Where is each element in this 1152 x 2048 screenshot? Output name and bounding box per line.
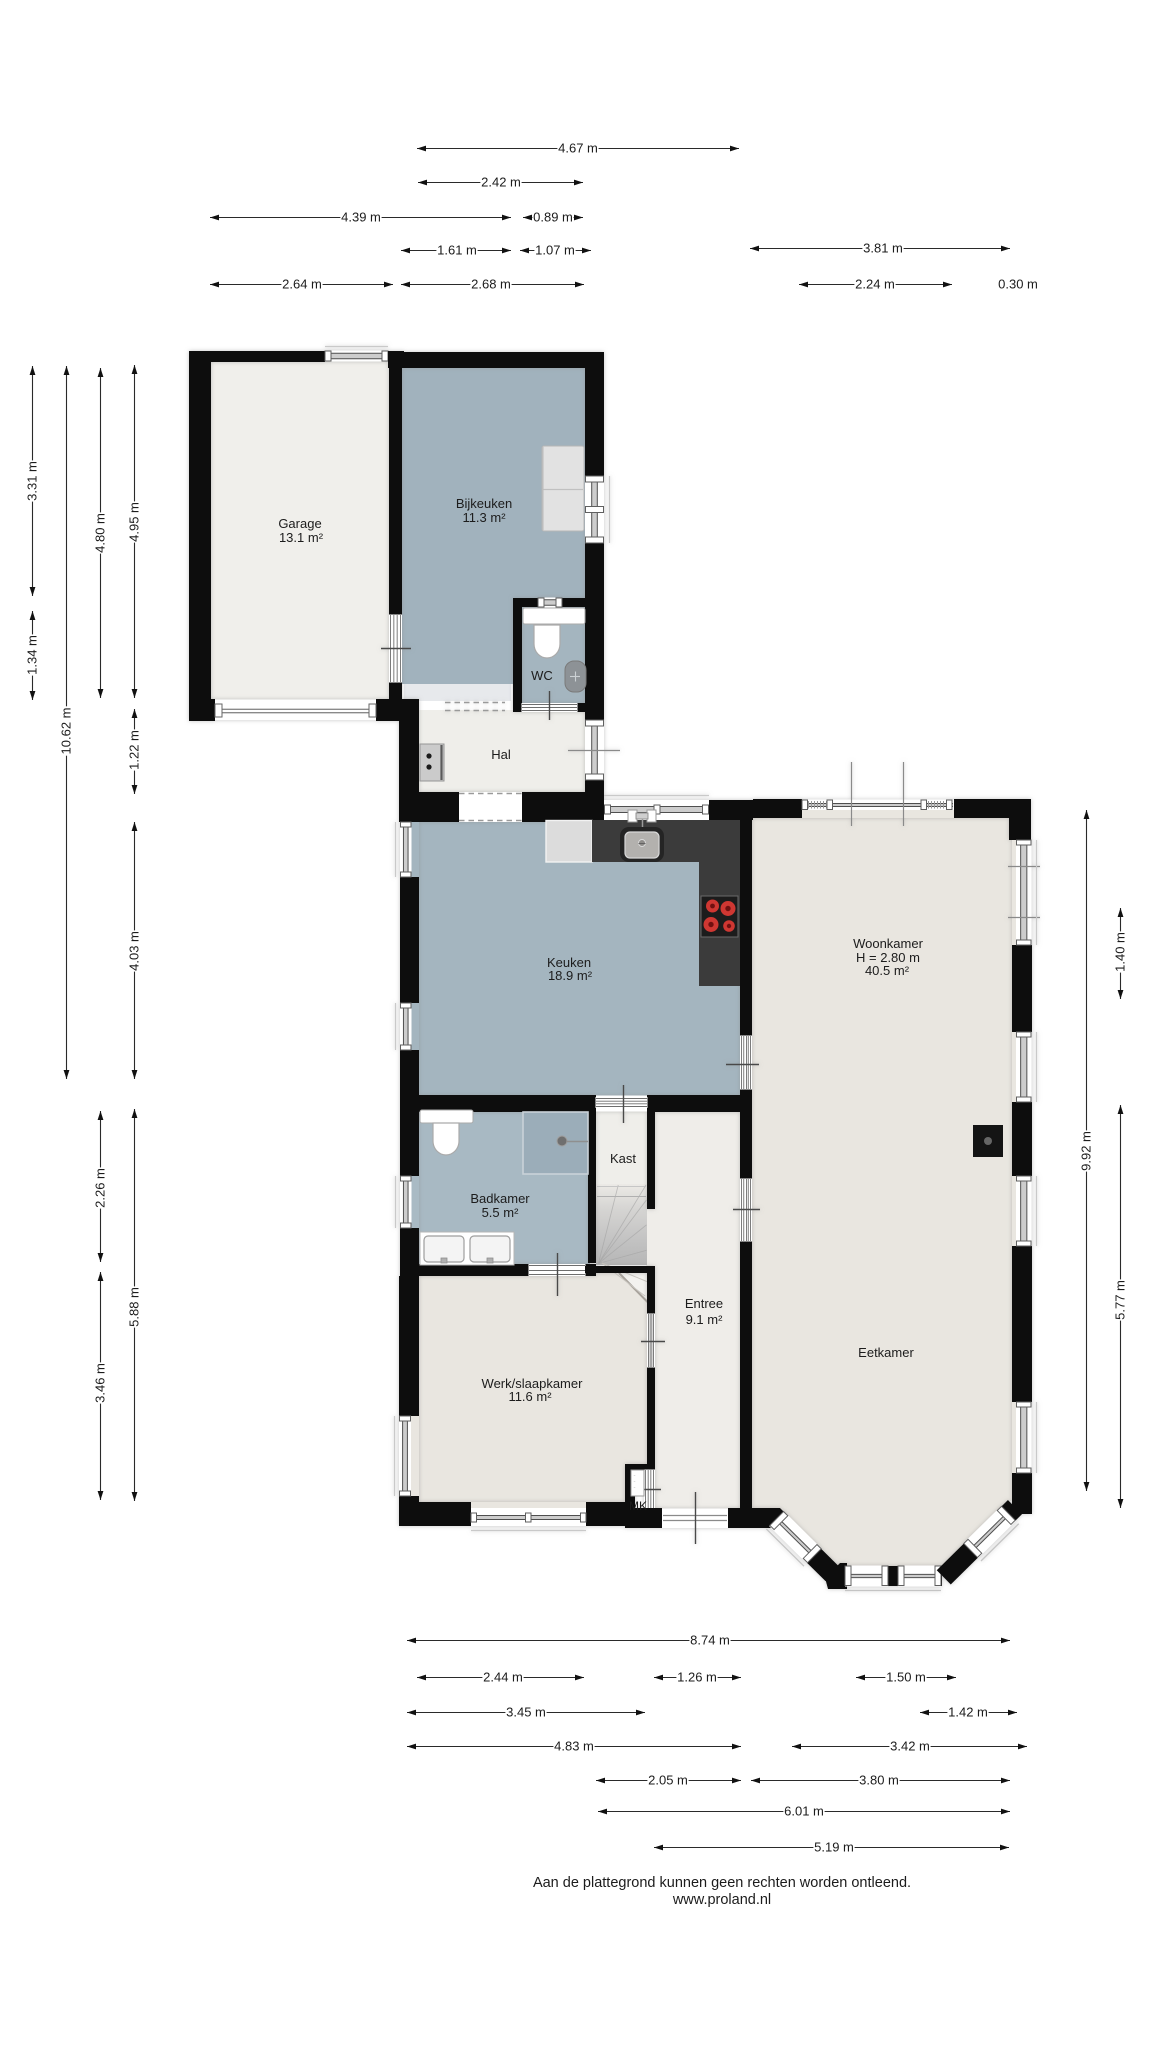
svg-text:2.05 m: 2.05 m [648, 1773, 688, 1788]
svg-text:3.31 m: 3.31 m [25, 461, 40, 501]
svg-text:4.03 m: 4.03 m [127, 931, 142, 971]
svg-text:1.34 m: 1.34 m [25, 635, 40, 675]
svg-text:18.9 m²: 18.9 m² [548, 968, 593, 983]
svg-text:3.81 m: 3.81 m [863, 241, 903, 256]
svg-text:Bijkeuken: Bijkeuken [456, 496, 512, 511]
svg-text:Garage: Garage [278, 516, 321, 531]
svg-text:1.22 m: 1.22 m [127, 730, 142, 770]
svg-text:3.46 m: 3.46 m [93, 1363, 108, 1403]
svg-text:8.74 m: 8.74 m [690, 1633, 730, 1648]
svg-text:40.5 m²: 40.5 m² [865, 963, 910, 978]
svg-text:2.64 m: 2.64 m [282, 277, 322, 292]
svg-text:1.50 m: 1.50 m [886, 1670, 926, 1685]
svg-text:2.24 m: 2.24 m [855, 277, 895, 292]
svg-text:2.26 m: 2.26 m [93, 1168, 108, 1208]
svg-text:4.83 m: 4.83 m [554, 1739, 594, 1754]
svg-text:www.proland.nl: www.proland.nl [672, 1892, 771, 1908]
svg-text:Badkamer: Badkamer [470, 1191, 530, 1206]
svg-text:1.61 m: 1.61 m [437, 243, 477, 258]
svg-text:5.19 m: 5.19 m [814, 1840, 854, 1855]
svg-text:4.67 m: 4.67 m [558, 141, 598, 156]
svg-text:MK: MK [629, 1499, 647, 1513]
svg-text:4.39 m: 4.39 m [341, 210, 381, 225]
svg-text:0.89 m: 0.89 m [533, 210, 573, 225]
svg-text:5.77 m: 5.77 m [1113, 1280, 1128, 1320]
svg-text:5.88 m: 5.88 m [127, 1287, 142, 1327]
svg-text:6.01 m: 6.01 m [784, 1804, 824, 1819]
svg-text:3.42 m: 3.42 m [890, 1739, 930, 1754]
svg-text:11.3 m²: 11.3 m² [462, 510, 506, 525]
svg-text:11.6 m²: 11.6 m² [508, 1389, 552, 1404]
svg-text:2.44 m: 2.44 m [483, 1670, 523, 1685]
svg-text:Eetkamer: Eetkamer [858, 1345, 914, 1360]
svg-text:1.40 m: 1.40 m [1113, 932, 1128, 972]
svg-text:2.68 m: 2.68 m [471, 277, 511, 292]
svg-text:Woonkamer: Woonkamer [853, 936, 924, 951]
svg-text:WC: WC [531, 668, 553, 683]
svg-text:1.07 m: 1.07 m [535, 243, 575, 258]
svg-text:Entree: Entree [685, 1296, 723, 1311]
svg-text:10.62 m: 10.62 m [59, 708, 74, 755]
svg-text:1.26 m: 1.26 m [677, 1670, 717, 1685]
svg-text:13.1 m²: 13.1 m² [279, 530, 324, 545]
svg-text:5.5 m²: 5.5 m² [482, 1205, 520, 1220]
svg-text:9.92 m: 9.92 m [1079, 1131, 1094, 1171]
svg-text:0.30 m: 0.30 m [998, 277, 1038, 292]
svg-text:3.80 m: 3.80 m [859, 1773, 899, 1788]
svg-text:4.80 m: 4.80 m [93, 513, 108, 553]
svg-text:3.45 m: 3.45 m [506, 1705, 546, 1720]
svg-text:1.42 m: 1.42 m [948, 1705, 988, 1720]
svg-text:Kast: Kast [610, 1151, 636, 1166]
svg-text:2.42 m: 2.42 m [481, 175, 521, 190]
svg-text:Aan de plattegrond kunnen geen: Aan de plattegrond kunnen geen rechten w… [533, 1875, 911, 1891]
svg-text:4.95 m: 4.95 m [127, 502, 142, 542]
svg-text:Hal: Hal [491, 747, 511, 762]
svg-text:9.1 m²: 9.1 m² [686, 1312, 724, 1327]
